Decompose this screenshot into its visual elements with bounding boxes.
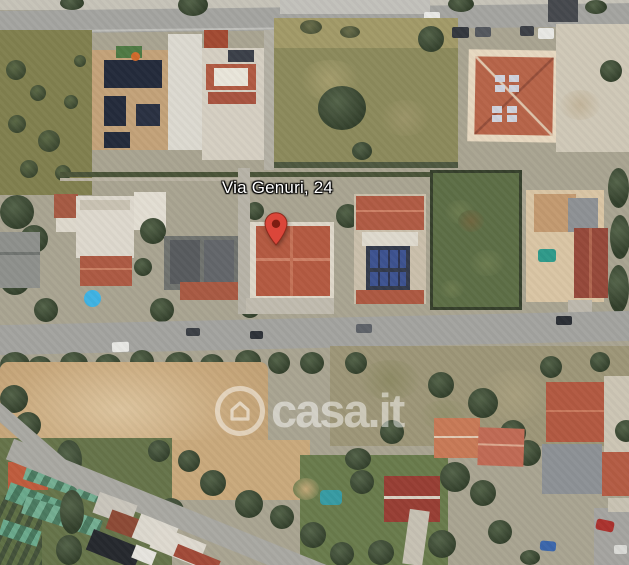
skylight	[507, 115, 517, 122]
roof-ridge	[589, 228, 592, 298]
tree	[468, 388, 498, 418]
tree	[470, 480, 496, 506]
roof-white-section	[362, 232, 418, 246]
skylight	[509, 85, 519, 92]
solar-panel-array	[370, 272, 406, 286]
building-dark-top-right	[548, 0, 578, 22]
hedge-line	[60, 172, 450, 177]
olive-tree	[74, 55, 86, 67]
gray-roof-section	[568, 198, 598, 232]
rooftop-dome	[131, 52, 140, 61]
tree	[540, 356, 562, 378]
roof-ridge	[434, 436, 480, 438]
tree	[60, 490, 84, 534]
grass-patch	[380, 100, 430, 136]
watermark-brand-text: casa.it	[271, 386, 403, 436]
olive-tree	[30, 85, 46, 101]
bush	[340, 26, 360, 38]
satellite-map-canvas[interactable]: casa.it Via Genuri, 24	[0, 0, 629, 565]
dirt-patch	[293, 478, 319, 500]
olive-tree	[8, 115, 26, 133]
olive-tree	[38, 130, 60, 152]
tree	[148, 440, 170, 462]
tree	[440, 462, 470, 492]
garage-shed	[608, 498, 629, 512]
tree	[178, 450, 200, 472]
olive-tree	[6, 60, 26, 80]
driveway	[264, 30, 274, 170]
tree	[608, 265, 629, 313]
parked-car	[520, 26, 534, 36]
parked-van	[538, 28, 554, 39]
terracotta-roof	[356, 196, 424, 230]
pool-teal	[538, 249, 556, 262]
tree	[140, 218, 166, 244]
olive-tree	[64, 95, 78, 109]
red-roof-small	[54, 194, 78, 218]
hedge-line	[274, 162, 458, 168]
tree	[134, 258, 152, 276]
tree	[352, 142, 372, 160]
tree	[0, 195, 34, 229]
car	[556, 316, 572, 325]
skylight	[509, 75, 519, 82]
dirt-patch	[560, 90, 600, 120]
watermark: casa.it	[215, 386, 403, 436]
blue-car	[540, 540, 557, 551]
parked-car	[452, 27, 469, 38]
dark-roof-section	[228, 50, 254, 62]
solar-panel-array	[104, 96, 126, 126]
map-pin-glyph	[264, 212, 288, 246]
tree	[368, 540, 394, 565]
tree	[300, 522, 326, 548]
solar-panel-array	[104, 60, 162, 88]
address-label: Via Genuri, 24	[205, 178, 350, 198]
tree	[345, 448, 371, 470]
road-light-patch	[280, 0, 430, 14]
tree	[610, 215, 629, 259]
red-roof-section	[208, 92, 256, 104]
roof-ridge	[290, 226, 293, 296]
grass-patch	[470, 250, 504, 276]
building-white	[168, 34, 202, 150]
red-roof-section	[204, 30, 228, 48]
roof-seam	[0, 252, 40, 255]
roof-detail	[80, 200, 130, 210]
terracotta-roof-row	[356, 290, 424, 304]
front-pavement	[246, 298, 334, 314]
house-icon-glyph	[228, 399, 252, 423]
terracotta-roof	[602, 452, 629, 496]
bush	[300, 20, 322, 34]
building-gray-flat	[0, 232, 40, 288]
road-bottom-right	[594, 508, 629, 565]
car	[186, 328, 200, 336]
building-gray-right	[542, 444, 602, 494]
solar-panel-array	[370, 250, 406, 268]
terracotta-roof-row	[180, 282, 238, 300]
tree	[150, 298, 174, 322]
roof-panel	[170, 240, 200, 284]
tree	[608, 168, 629, 208]
building-red-right	[546, 382, 604, 442]
building-salmon-roof	[477, 427, 524, 467]
gable-line	[384, 496, 440, 499]
grass-patch	[440, 280, 464, 298]
building-big-red-roof	[474, 56, 553, 135]
solar-panel-array	[136, 104, 160, 126]
car	[112, 342, 129, 353]
terracotta-roof-row	[80, 256, 132, 286]
roof-ridge	[546, 410, 604, 412]
car	[356, 324, 372, 333]
tree	[428, 530, 456, 558]
concrete-lot	[556, 24, 629, 152]
tree	[590, 352, 610, 372]
tree	[345, 352, 367, 374]
location-pin-icon[interactable]	[264, 212, 288, 251]
skylight	[492, 106, 502, 113]
tree	[428, 372, 454, 398]
white-shed	[56, 218, 76, 232]
tree	[585, 0, 607, 14]
roof-panel	[204, 240, 234, 284]
skylight	[492, 115, 502, 122]
parked-car	[475, 27, 491, 37]
pool-round	[84, 290, 101, 307]
skylight	[495, 75, 505, 82]
tree	[34, 298, 58, 322]
tree-row	[268, 352, 290, 374]
skylight	[495, 85, 505, 92]
tree-row	[300, 352, 324, 374]
tree	[330, 542, 354, 565]
roof-ridge	[256, 258, 330, 261]
white-car	[614, 545, 627, 554]
pool-teal	[320, 490, 342, 505]
solar-panel-array	[104, 132, 130, 148]
house-icon	[215, 386, 265, 436]
tree	[350, 470, 374, 494]
building-orange-house	[434, 418, 480, 458]
tree	[235, 490, 263, 518]
tree	[488, 520, 512, 544]
roof-ridge	[356, 210, 424, 212]
tree	[56, 535, 82, 565]
tree	[318, 86, 366, 130]
tree	[418, 26, 444, 52]
tree	[200, 470, 226, 496]
tree	[520, 550, 540, 565]
tree	[600, 60, 622, 82]
dirt-patch	[458, 210, 484, 232]
roof-ridge	[80, 268, 132, 270]
roof-white-boxes	[214, 68, 248, 86]
skylight	[507, 106, 517, 113]
tree	[270, 505, 294, 529]
olive-tree	[20, 160, 38, 178]
car	[250, 331, 263, 339]
